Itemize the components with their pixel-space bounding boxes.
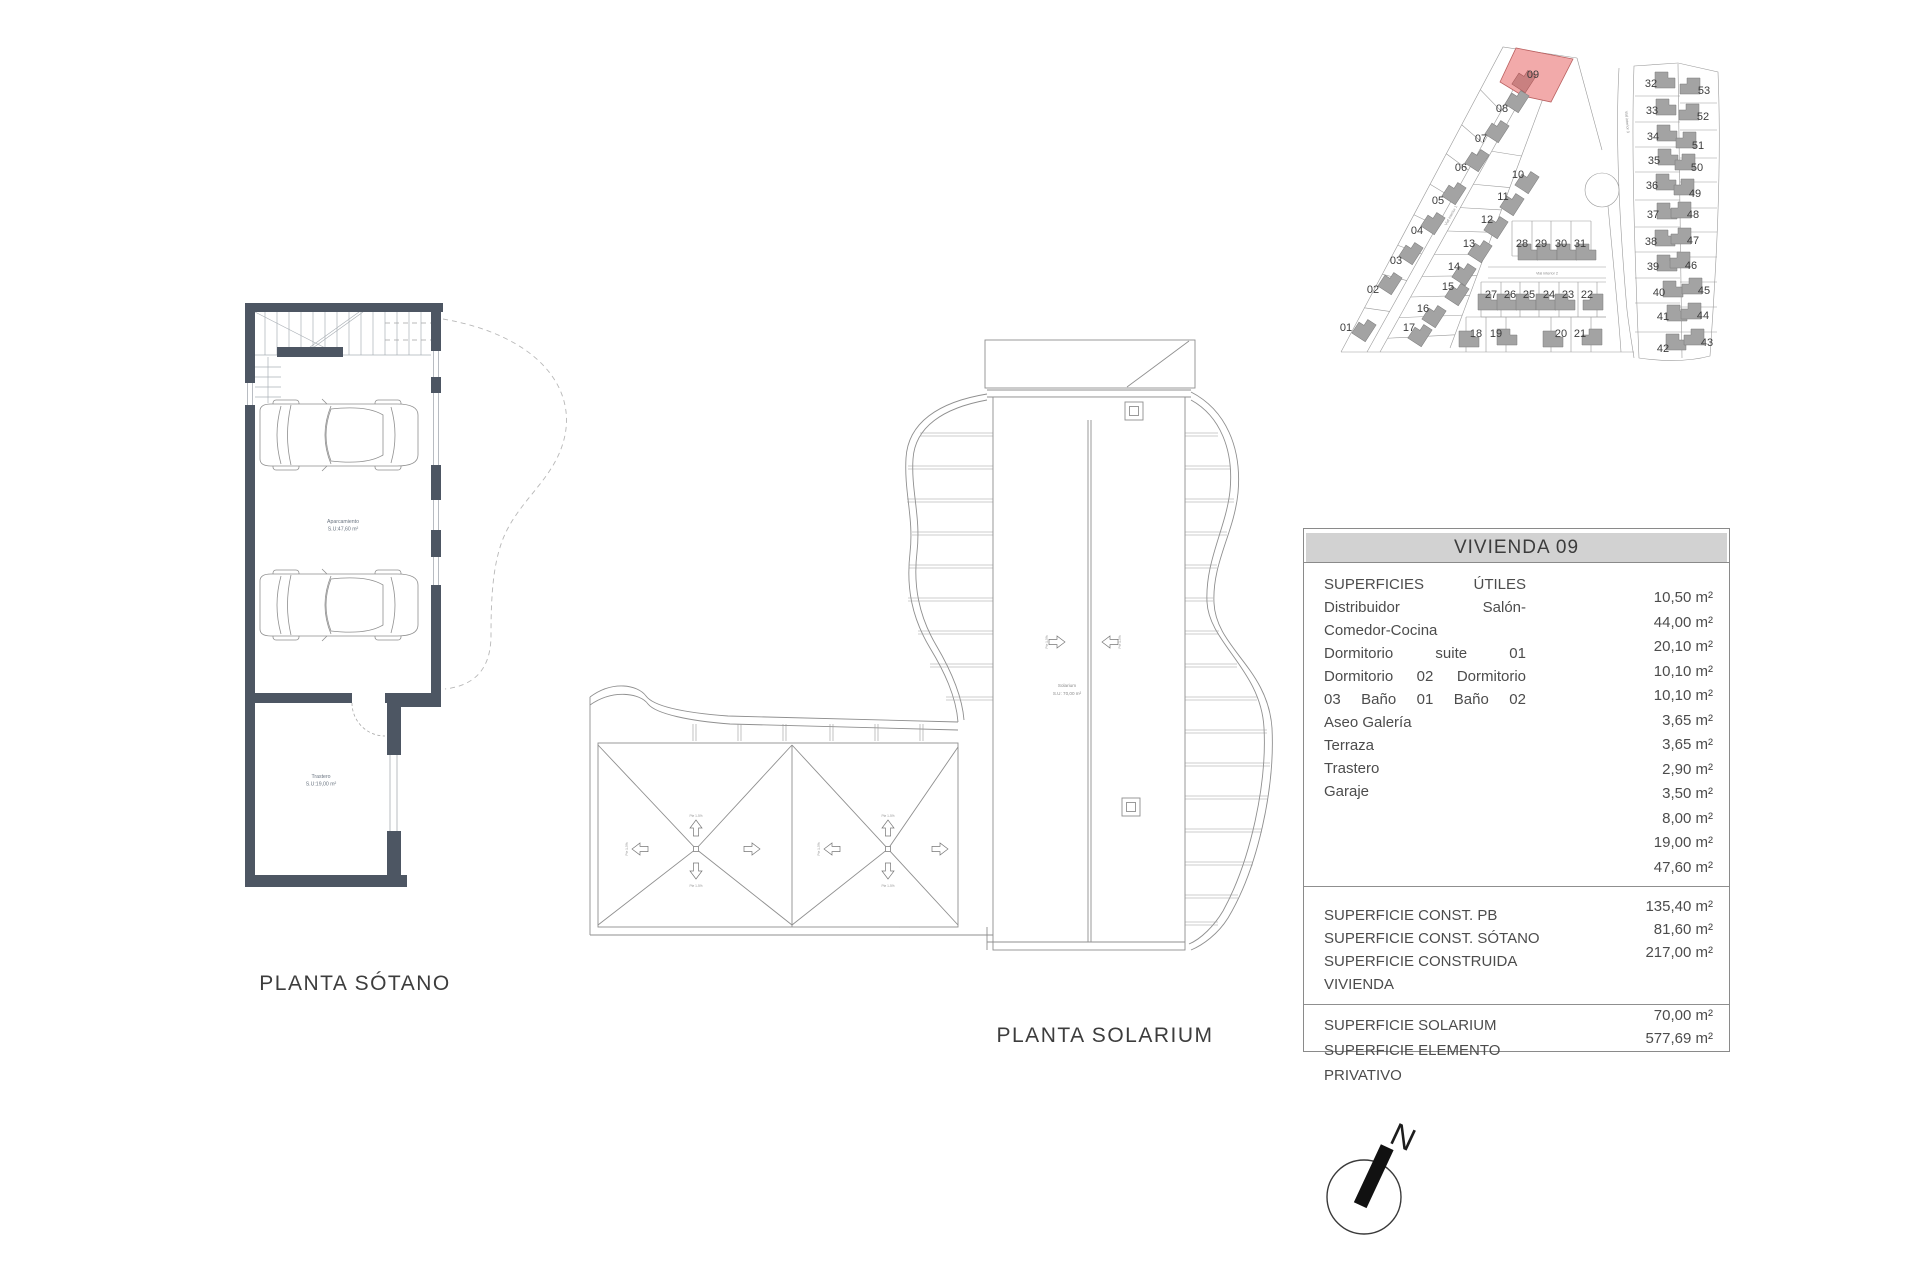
plot-divider <box>1364 308 1389 312</box>
plot-number-52: 52 <box>1697 111 1709 123</box>
table-section: SUPERFICIE CONST. PBSUPERFICIE CONST. SÓ… <box>1304 886 1729 1004</box>
plot-number-31: 31 <box>1574 238 1586 250</box>
solarium-plan-title: PLANTA SOLARIUM <box>985 1024 1225 1048</box>
table-label: Garaje <box>1324 780 1556 803</box>
plot-divider <box>1492 151 1522 156</box>
compass-needle-icon <box>1354 1144 1394 1208</box>
plot-number-06: 06 <box>1455 162 1467 174</box>
house-footprint-33 <box>1656 99 1676 115</box>
plot-number-19: 19 <box>1490 328 1502 340</box>
plot-number-40: 40 <box>1653 287 1665 299</box>
storage-area-label: S.U:19,00 m² <box>306 782 337 788</box>
plot-number-22: 22 <box>1581 289 1593 301</box>
table-value: 44,00 m² <box>1654 611 1713 636</box>
table-section: SUPERFICIE SOLARIUMSUPERFICIE ELEMENTO P… <box>1304 1004 1729 1104</box>
table-value: 19,00 m² <box>1654 831 1713 856</box>
table-section: SUPERFICIES ÚTILESDistribuidor Salón-Com… <box>1304 563 1729 886</box>
plot-number-24: 24 <box>1543 289 1555 301</box>
table-value: 10,50 m² <box>1654 586 1713 611</box>
table-label: SUPERFICIE CONST. PB <box>1324 904 1556 927</box>
table-value: 8,00 m² <box>1654 807 1713 832</box>
solarium-floor-plan: Pte 1-5% Pte 1-5% Pte 1-5% Pte 1-5% Pte … <box>578 328 1278 1068</box>
road-label-vial-interior-2: Vial interior 2 <box>1536 272 1558 276</box>
plot-number-32: 32 <box>1645 78 1657 90</box>
table-value: 2,90 m² <box>1654 758 1713 783</box>
plot-number-23: 23 <box>1562 289 1574 301</box>
solarium-room-label: Solarium <box>1058 683 1076 688</box>
table-value: 20,10 m² <box>1654 635 1713 660</box>
plot-number-35: 35 <box>1648 155 1660 167</box>
solarium-outline <box>590 340 1272 950</box>
table-label: 03 Baño 01 Baño 02 <box>1324 688 1556 711</box>
plot-number-11: 11 <box>1497 191 1508 203</box>
car-top-view-1 <box>260 399 418 471</box>
solarium-area-label: S.U: 70,00 m² <box>1053 691 1082 696</box>
table-label: Trastero <box>1324 757 1556 780</box>
table-label: Comedor-Cocina <box>1324 619 1556 642</box>
table-label: Aseo Galería <box>1324 711 1556 734</box>
table-label-column: SUPERFICIE CONST. PBSUPERFICIE CONST. SÓ… <box>1324 904 1556 996</box>
road-label-vial-interior-3: Vial interior 3 <box>1624 111 1630 133</box>
plot-number-34: 34 <box>1647 131 1659 143</box>
plot-number-15: 15 <box>1442 281 1454 293</box>
table-label: SUPERFICIE SOLARIUM <box>1324 1013 1556 1038</box>
plot-number-33: 33 <box>1646 105 1658 117</box>
plot-parcels: 0102030405060708091011121314151617282930… <box>1340 67 1717 355</box>
plot-number-20: 20 <box>1555 328 1567 340</box>
plot-number-27: 27 <box>1485 289 1497 301</box>
plot-number-42: 42 <box>1657 343 1669 355</box>
plot-number-17: 17 <box>1403 322 1415 334</box>
house-footprint-02 <box>1378 269 1402 294</box>
storage-label: Trastero <box>311 774 330 780</box>
plot-number-09: 09 <box>1527 69 1539 81</box>
plot-number-43: 43 <box>1701 337 1713 349</box>
table-value: 135,40 m² <box>1645 895 1713 918</box>
slope-label: Pte 1-5% <box>625 842 629 855</box>
table-label: Dormitorio suite 01 <box>1324 642 1556 665</box>
table-value: 3,65 m² <box>1654 709 1713 734</box>
slope-label: Pte 1-5% <box>1118 635 1122 648</box>
table-value: 577,69 m² <box>1645 1027 1713 1050</box>
table-value-column: 135,40 m²81,60 m²217,00 m² <box>1645 895 1713 996</box>
table-label: SUPERFICIE ELEMENTO PRIVATIVO <box>1324 1038 1556 1088</box>
plot-number-36: 36 <box>1646 180 1658 192</box>
plot-number-28: 28 <box>1516 238 1528 250</box>
slope-label: Pte 1-5% <box>881 884 894 888</box>
plot-number-05: 05 <box>1432 195 1444 207</box>
house-footprint-03 <box>1399 239 1423 264</box>
house-footprint-40 <box>1663 281 1683 297</box>
table-value: 10,10 m² <box>1654 684 1713 709</box>
plot-number-16: 16 <box>1417 303 1429 315</box>
table-value: 10,10 m² <box>1654 660 1713 685</box>
compass: N <box>1300 1090 1440 1250</box>
plot-number-30: 30 <box>1555 238 1567 250</box>
parking-label: Aparcamiento <box>327 519 359 525</box>
table-value: 47,60 m² <box>1654 856 1713 881</box>
table-label: Terraza <box>1324 734 1556 757</box>
storage-door-swing <box>352 703 385 736</box>
plot-number-03: 03 <box>1390 255 1402 267</box>
slope-label: Pte 1-5% <box>817 842 821 855</box>
table-value: 3,65 m² <box>1654 733 1713 758</box>
surface-table-body: SUPERFICIES ÚTILESDistribuidor Salón-Com… <box>1304 563 1729 1104</box>
slope-label: Pte 1-5% <box>881 814 894 818</box>
plot-number-07: 07 <box>1475 133 1487 145</box>
plot-number-53: 53 <box>1698 85 1710 97</box>
drawing-sheet: Aparcamiento S.U:47,60 m² Trastero S.U:1… <box>0 0 1920 1280</box>
plot-number-13: 13 <box>1463 238 1475 250</box>
plot-number-45: 45 <box>1698 285 1710 297</box>
table-label: Dormitorio 02 Dormitorio <box>1324 665 1556 688</box>
plot-number-29: 29 <box>1535 238 1547 250</box>
plot-number-12: 12 <box>1481 214 1493 226</box>
plot-number-46: 46 <box>1685 260 1697 272</box>
slope-label: Pte 1-5% <box>1045 635 1049 648</box>
plot-divider <box>1473 184 1509 187</box>
plot-number-21: 21 <box>1574 328 1586 340</box>
basement-plan-title: PLANTA SÓTANO <box>245 972 465 996</box>
plot-number-25: 25 <box>1523 289 1535 301</box>
house-footprint-05 <box>1442 179 1466 204</box>
plot-number-47: 47 <box>1687 235 1699 247</box>
table-title: VIVIENDA 09 <box>1306 533 1727 562</box>
table-value-column: 70,00 m²577,69 m² <box>1645 1004 1713 1088</box>
plot-number-44: 44 <box>1697 310 1709 322</box>
table-label-column: SUPERFICIES ÚTILESDistribuidor Salón-Com… <box>1324 573 1556 880</box>
site-plan: 0102030405060708091011121314151617282930… <box>1340 30 1810 430</box>
table-label: SUPERFICIE CONST. SÓTANO <box>1324 927 1556 950</box>
table-value: 70,00 m² <box>1645 1004 1713 1027</box>
table-value: 217,00 m² <box>1645 941 1713 964</box>
table-label: SUPERFICIES ÚTILES <box>1324 573 1556 596</box>
parking-area-label: S.U:47,60 m² <box>328 527 359 533</box>
plot-number-08: 08 <box>1496 103 1508 115</box>
house-footprint-04 <box>1421 209 1445 234</box>
slope-label: Pte 1-5% <box>689 814 702 818</box>
basement-dashed-projection <box>443 319 566 689</box>
house-footprint-34 <box>1657 125 1677 141</box>
plot-number-38: 38 <box>1645 236 1657 248</box>
plot-number-48: 48 <box>1687 209 1699 221</box>
plot-number-39: 39 <box>1647 261 1659 273</box>
plot-number-01: 01 <box>1340 322 1352 334</box>
car-top-view-2 <box>260 569 418 641</box>
house-footprint-32 <box>1655 72 1675 88</box>
table-value-column: 10,50 m²44,00 m²20,10 m²10,10 m²10,10 m²… <box>1654 586 1713 880</box>
house-footprint-07 <box>1485 117 1509 142</box>
plot-number-50: 50 <box>1691 162 1703 174</box>
plot-divider <box>1460 208 1501 210</box>
plot-number-10: 10 <box>1512 169 1524 181</box>
table-value: 81,60 m² <box>1645 918 1713 941</box>
surface-table: VIVIENDA 09 SUPERFICIES ÚTILESDistribuid… <box>1303 528 1730 1052</box>
table-value: 3,50 m² <box>1654 782 1713 807</box>
basement-stair-breaklines <box>255 312 431 403</box>
slope-label: Pte 1-5% <box>689 884 702 888</box>
plot-number-49: 49 <box>1689 188 1701 200</box>
surface-table-header: VIVIENDA 09 <box>1304 529 1729 563</box>
house-footprint-01 <box>1352 316 1376 341</box>
house-footprint-06 <box>1465 146 1489 171</box>
plot-number-41: 41 <box>1657 311 1669 323</box>
plot-number-51: 51 <box>1692 140 1704 152</box>
plot-number-37: 37 <box>1647 209 1659 221</box>
table-label: Distribuidor Salón- <box>1324 596 1556 619</box>
plot-number-04: 04 <box>1411 225 1423 237</box>
table-label: SUPERFICIE CONSTRUIDA VIVIENDA <box>1324 950 1556 996</box>
plot-number-14: 14 <box>1448 261 1460 273</box>
cul-de-sac <box>1585 173 1619 207</box>
plot-number-18: 18 <box>1470 328 1482 340</box>
plot-number-26: 26 <box>1504 289 1516 301</box>
house-footprint-36 <box>1656 174 1676 190</box>
plot-number-02: 02 <box>1367 284 1379 296</box>
table-label-column: SUPERFICIE SOLARIUMSUPERFICIE ELEMENTO P… <box>1324 1013 1556 1088</box>
basement-floor-plan: Aparcamiento S.U:47,60 m² Trastero S.U:1… <box>235 295 465 895</box>
